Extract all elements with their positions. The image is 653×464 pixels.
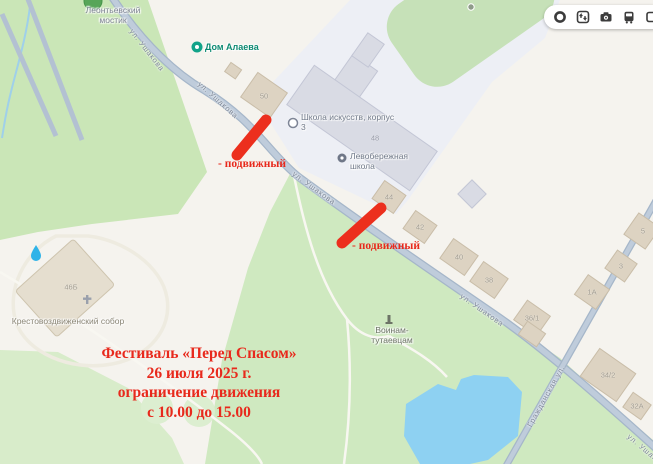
panoramas-icon[interactable] — [645, 10, 653, 24]
festival-announcement: Фестиваль «Перед Спасом» 26 июля 2025 г.… — [58, 344, 340, 422]
traffic-icon[interactable] — [553, 10, 567, 24]
building-number: 36/1 — [525, 314, 540, 323]
art-school-icon[interactable] — [289, 119, 298, 128]
festival-title: Фестиваль «Перед Спасом» — [58, 344, 340, 364]
building-number: 40 — [455, 253, 463, 262]
map-screen[interactable]: ул. Ушакова ул. Ушакова ул. Ушакова ул. … — [0, 0, 653, 464]
building-number: 50 — [260, 92, 268, 101]
building-number: 46Б — [64, 283, 77, 292]
festival-date: 26 июля 2025 г. — [58, 364, 340, 384]
closure-label-1: - подвижный — [218, 158, 286, 170]
poi-label-war-memorial[interactable]: Воинам-тутаевцам — [361, 325, 423, 345]
festival-hours: с 10.00 до 15.00 — [58, 403, 340, 423]
poi-label-bridge[interactable]: Леонтьевский мостик — [74, 5, 152, 25]
bus-icon[interactable] — [622, 10, 636, 24]
poi-label-alaev-house[interactable]: Дом Алаева — [205, 42, 275, 52]
left-bank-school-icon[interactable] — [338, 154, 347, 163]
building-number: 34/2 — [601, 371, 616, 380]
building-number: 1А — [587, 288, 596, 297]
building-number: 32А — [630, 402, 643, 411]
festival-restriction: ограничение движения — [58, 383, 340, 403]
building-number: 38 — [485, 276, 493, 285]
alaev-house-icon[interactable] — [192, 42, 203, 53]
poi-label-left-bank-school[interactable]: Левобережная школа — [350, 151, 422, 171]
building-number: 42 — [416, 223, 424, 232]
sports-icon — [468, 4, 474, 10]
closure-label-2: - подвижный — [352, 240, 420, 252]
building-number: 48 — [371, 134, 379, 143]
poi-label-art-school[interactable]: Школа искусств, корпус 3 — [301, 112, 396, 132]
map-controls-pill — [544, 5, 653, 29]
navigator-arrows-icon[interactable] — [576, 10, 590, 24]
poi-label-cathedral[interactable]: Крестовоздвиженский собор — [8, 316, 128, 326]
building-number: 3 — [619, 262, 623, 271]
building-number: 5 — [641, 227, 645, 236]
building-number: 44 — [385, 193, 393, 202]
camera-icon[interactable] — [599, 10, 613, 24]
